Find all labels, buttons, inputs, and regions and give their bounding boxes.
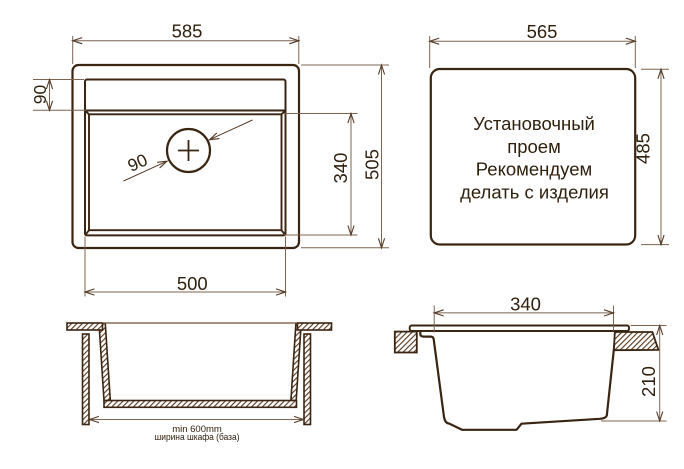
svg-text:340: 340 (510, 294, 541, 315)
svg-text:500: 500 (177, 273, 208, 294)
svg-text:90: 90 (125, 149, 151, 175)
svg-text:505: 505 (361, 149, 382, 180)
svg-text:90: 90 (30, 85, 50, 105)
svg-text:565: 565 (527, 21, 558, 42)
svg-text:340: 340 (330, 153, 351, 184)
svg-text:Установочный: Установочный (473, 113, 595, 134)
svg-text:делать с изделия: делать с изделия (460, 181, 609, 202)
svg-text:485: 485 (632, 133, 653, 164)
svg-text:ширина шкафа (база): ширина шкафа (база) (155, 432, 240, 442)
svg-text:210: 210 (638, 366, 659, 397)
svg-text:Рекомендуем: Рекомендуем (476, 158, 592, 179)
svg-text:585: 585 (172, 20, 203, 41)
svg-text:проем: проем (507, 136, 561, 157)
